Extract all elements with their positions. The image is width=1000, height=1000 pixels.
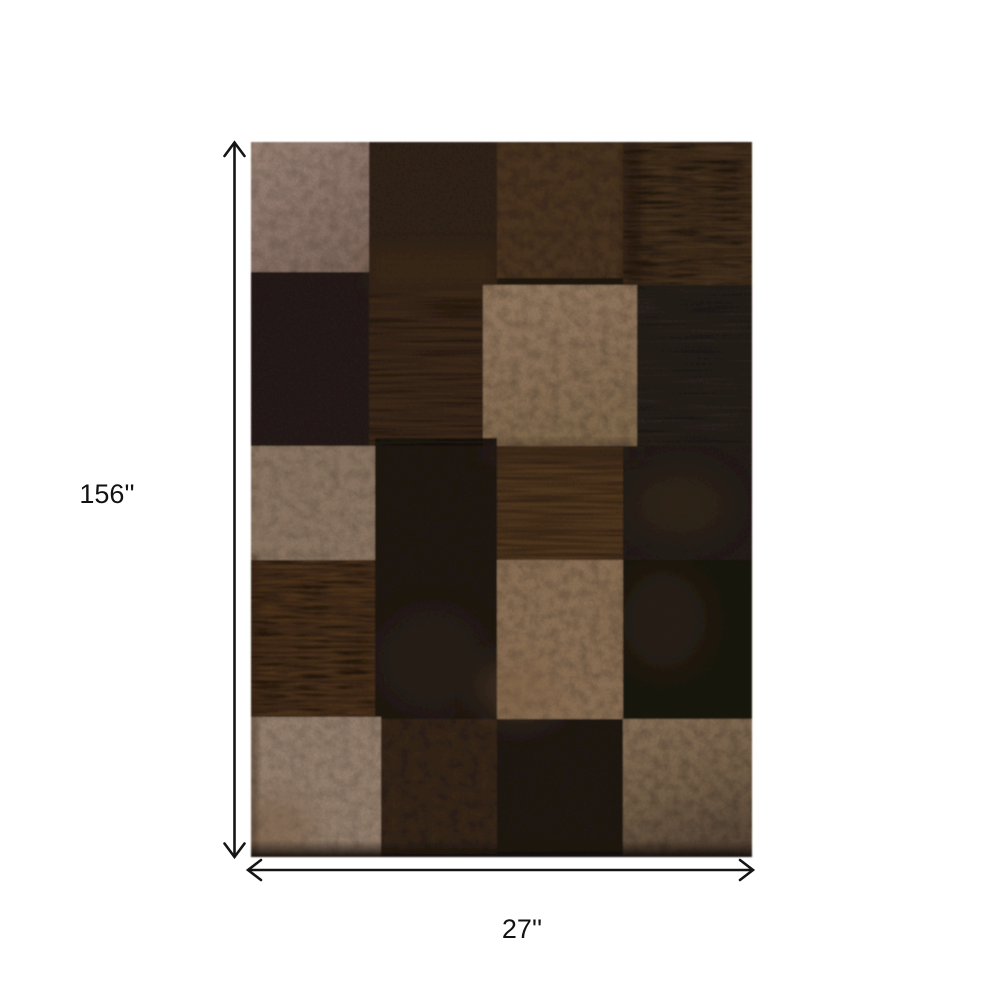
- svg-text:27'': 27'': [502, 914, 542, 944]
- svg-text:156'': 156'': [79, 479, 134, 509]
